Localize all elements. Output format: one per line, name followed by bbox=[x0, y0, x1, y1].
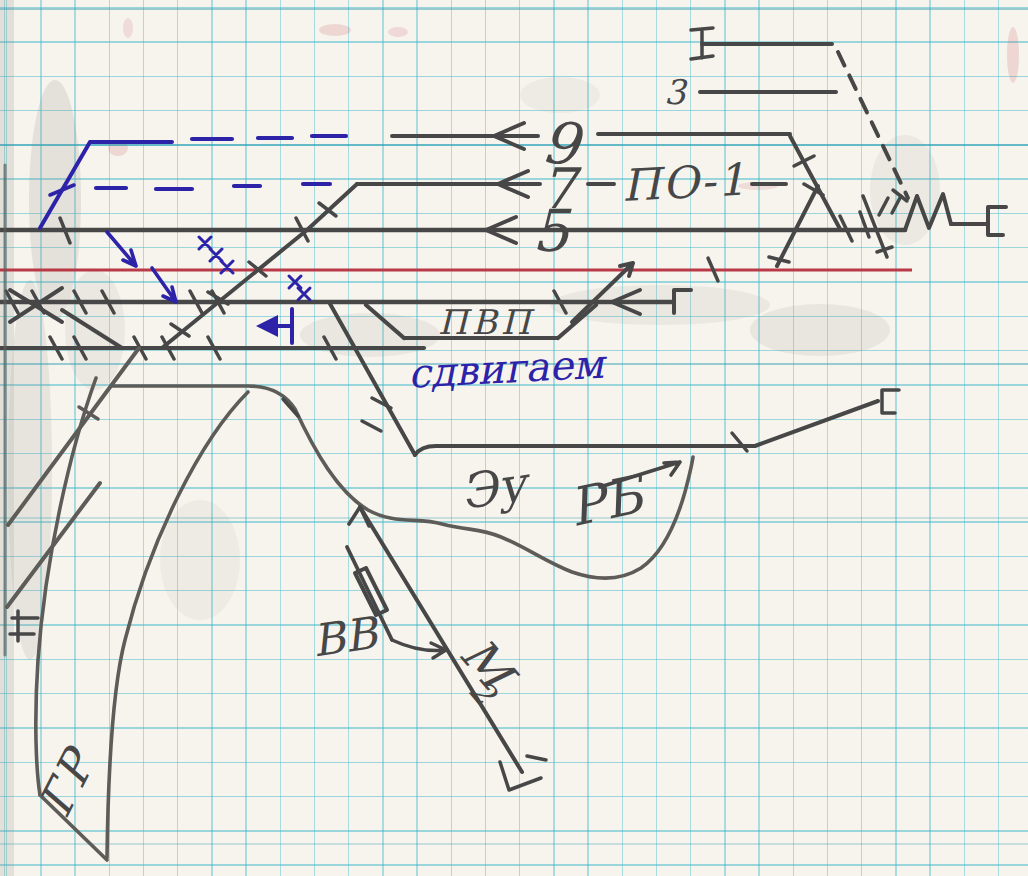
ink-x-marks-b bbox=[289, 276, 310, 300]
notebook-page: 3 9 7 ПО-1 5 ПВП сдвигаем Эу РБ ВВ М 2 Г… bbox=[0, 0, 1028, 876]
label-track-3: 3 bbox=[664, 72, 688, 112]
switch-diagonal bbox=[777, 186, 818, 266]
diagonal-a bbox=[162, 230, 307, 348]
vv-arrow bbox=[392, 640, 446, 658]
label-m2: М 2 bbox=[440, 626, 529, 713]
label-track-5: 5 bbox=[532, 197, 572, 265]
label-vv: ВВ bbox=[309, 606, 384, 666]
label-po1: ПО-1 bbox=[621, 154, 749, 211]
tick-mark bbox=[732, 433, 747, 451]
track-5 bbox=[0, 194, 1006, 257]
tick-marks bbox=[60, 212, 869, 243]
ink-dashes-row2 bbox=[96, 184, 330, 189]
ink-dashes-row1 bbox=[192, 136, 346, 139]
switch-diagonal bbox=[790, 136, 840, 229]
ink-x-marks-a bbox=[199, 237, 233, 273]
track-eu bbox=[415, 401, 878, 455]
track-9 bbox=[392, 123, 840, 229]
buffer-stop-icon bbox=[988, 207, 1006, 235]
label-sdvigaem: сдвигаем bbox=[407, 340, 609, 396]
ink-arrow-2 bbox=[152, 268, 176, 302]
label-eu: Эу bbox=[457, 455, 535, 520]
gr-right-leg bbox=[107, 392, 248, 858]
track-diagram: 3 9 7 ПО-1 5 ПВП сдвигаем Эу РБ ВВ М 2 Г… bbox=[0, 0, 1028, 876]
label-pvp: ПВП bbox=[438, 302, 535, 342]
ink-shift-arrow bbox=[256, 309, 292, 343]
label-gr-text: ГР bbox=[28, 738, 108, 825]
ink-arrow-1 bbox=[107, 232, 136, 266]
buffer-stop-icon bbox=[882, 390, 899, 413]
label-gr: ГР bbox=[28, 738, 108, 825]
